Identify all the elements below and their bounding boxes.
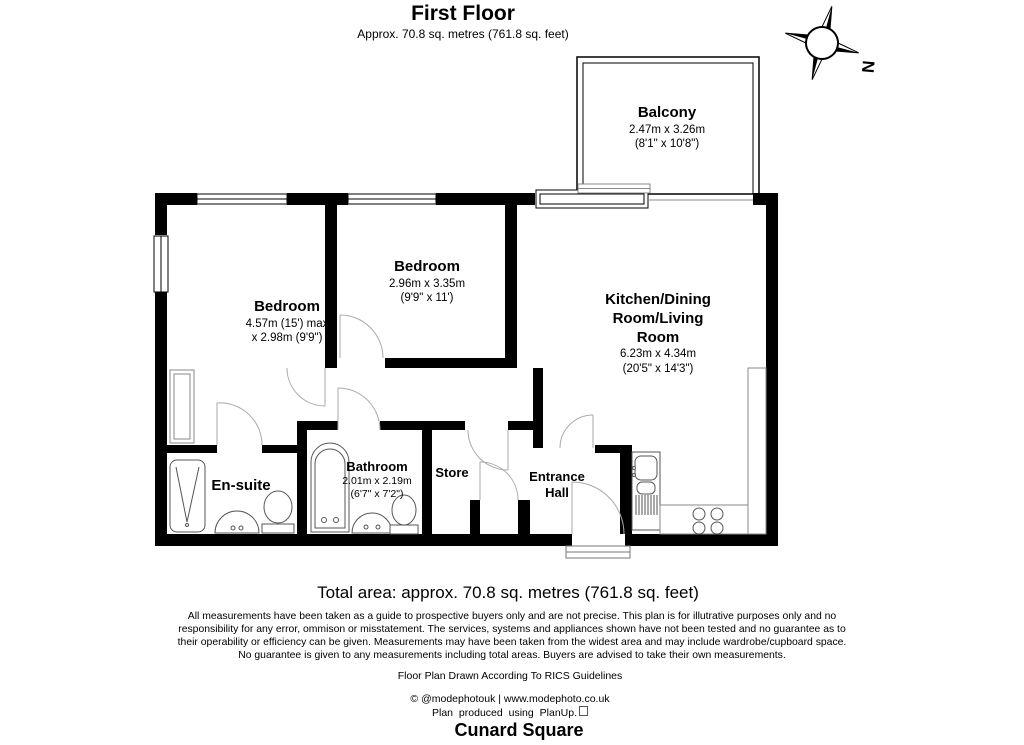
door-store xyxy=(468,430,508,470)
store-label: Store xyxy=(435,465,468,481)
disclaimer: All measurements have been taken as a gu… xyxy=(178,610,847,662)
door-bedroom1 xyxy=(287,368,325,406)
bathroom-sink xyxy=(352,513,392,533)
fixtures xyxy=(170,368,766,558)
window-bedroom1-side xyxy=(154,236,168,292)
bathroom-label: Bathroom 2.01m x 2.19m (6'7" x 7'2") xyxy=(342,459,411,502)
ensuite-label: En-suite xyxy=(211,477,270,496)
bedroom1-label: Bedroom 4.57m (15') max x 2.98m (9'9") xyxy=(246,298,329,346)
entrance-hall-label: Entrance Hall xyxy=(529,469,585,502)
window-bedroom2 xyxy=(348,194,436,204)
entrance-threshold xyxy=(566,546,630,558)
door-ensuite xyxy=(217,403,262,445)
wardrobe xyxy=(170,370,194,443)
door-cupboard xyxy=(480,462,518,500)
bedroom2-label: Bedroom 2.96m x 3.35m (9'9" x 11') xyxy=(389,258,465,306)
kitchen-label: Kitchen/Dining Room/Living Room 6.23m x … xyxy=(605,291,711,376)
kitchen-sink-unit xyxy=(632,452,660,530)
floor-plan-page: N First Floor Approx. 70.8 sq. metres (7… xyxy=(0,0,1024,745)
planup-missing-glyph xyxy=(579,706,588,716)
door-bathroom xyxy=(338,388,380,430)
rics-note: Floor Plan Drawn According To RICS Guide… xyxy=(398,670,623,682)
disclaimer-line: All measurements have been taken as a gu… xyxy=(178,610,847,623)
property-name: Cunard Square xyxy=(454,720,583,741)
shower xyxy=(170,460,205,532)
compass-north-label: N xyxy=(858,60,878,74)
page-subtitle: Approx. 70.8 sq. metres (761.8 sq. feet) xyxy=(357,27,568,41)
ensuite-sink xyxy=(215,511,259,533)
door-kitchen xyxy=(560,415,593,448)
hob xyxy=(693,508,723,534)
produced-text: Plan produced using PlanUp. xyxy=(432,707,577,719)
page-title: First Floor xyxy=(411,2,515,26)
window-bedroom1 xyxy=(197,194,287,204)
disclaimer-line: No guarantee is given to any measurement… xyxy=(178,649,847,662)
disclaimer-line: responsibility for any error, ommison or… xyxy=(178,623,847,636)
disclaimer-line: their operability or efficiency can be g… xyxy=(178,636,847,649)
ensuite-toilet xyxy=(262,491,294,533)
produced-line: Plan produced using PlanUp. xyxy=(432,706,588,719)
door-bedroom2 xyxy=(340,315,383,358)
balcony-label: Balcony 2.47m x 3.26m (8'1" x 10'8") xyxy=(629,104,705,152)
compass-icon: N xyxy=(775,0,890,95)
credit-line: © @modephotouk | www.modephoto.co.uk xyxy=(410,693,609,705)
total-area: Total area: approx. 70.8 sq. metres (761… xyxy=(317,583,699,603)
